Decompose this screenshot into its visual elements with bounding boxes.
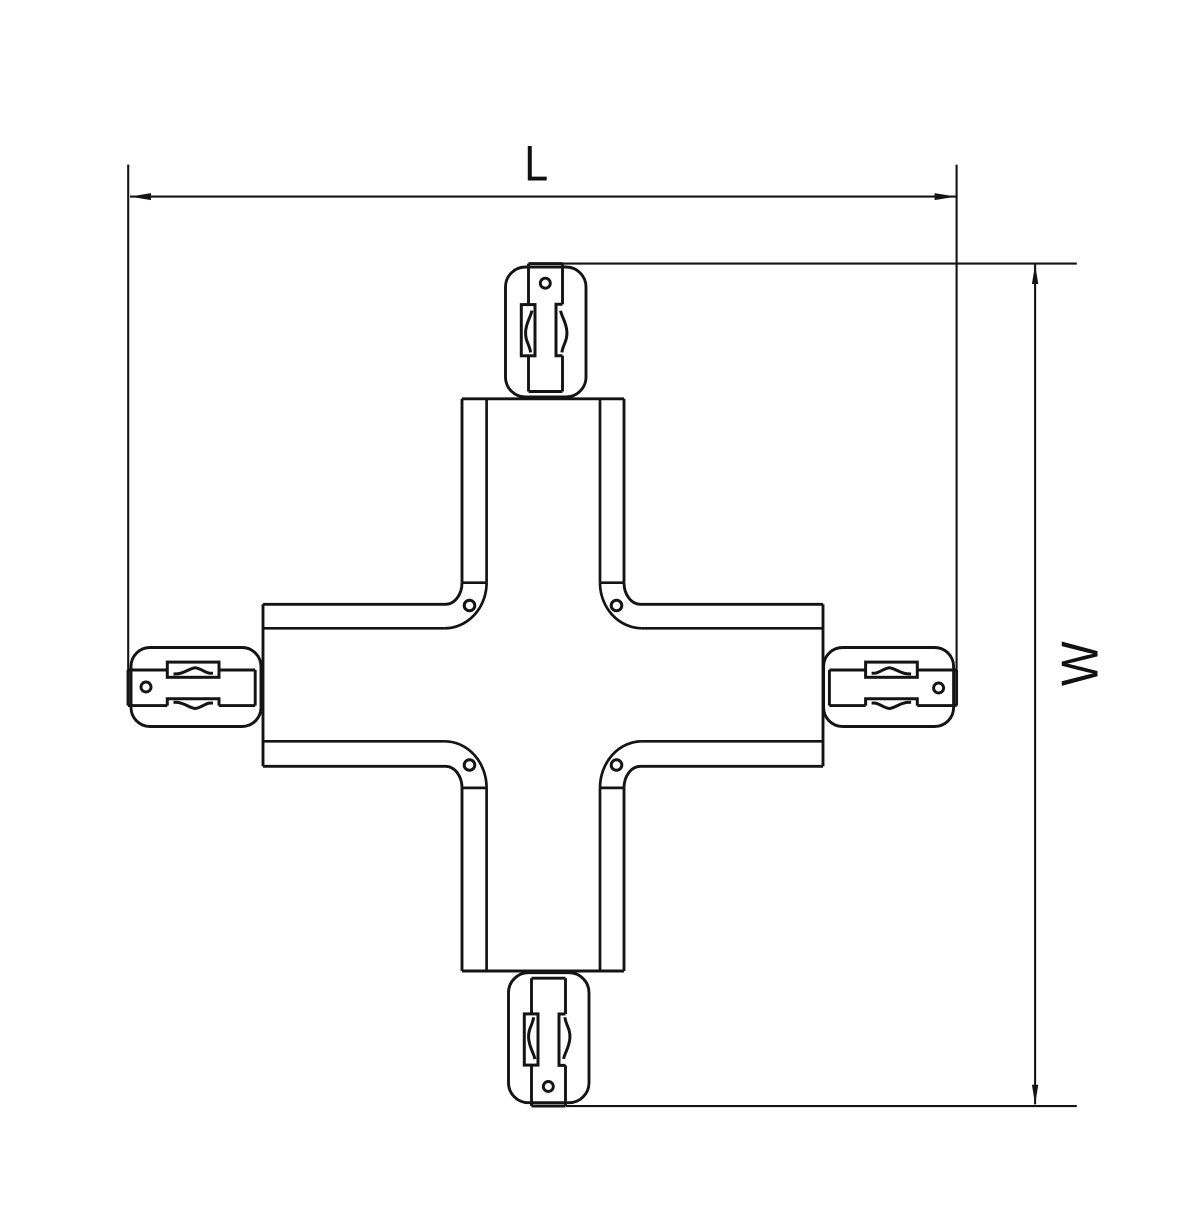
svg-text:W: W bbox=[1052, 641, 1110, 686]
svg-text:L: L bbox=[524, 135, 548, 191]
